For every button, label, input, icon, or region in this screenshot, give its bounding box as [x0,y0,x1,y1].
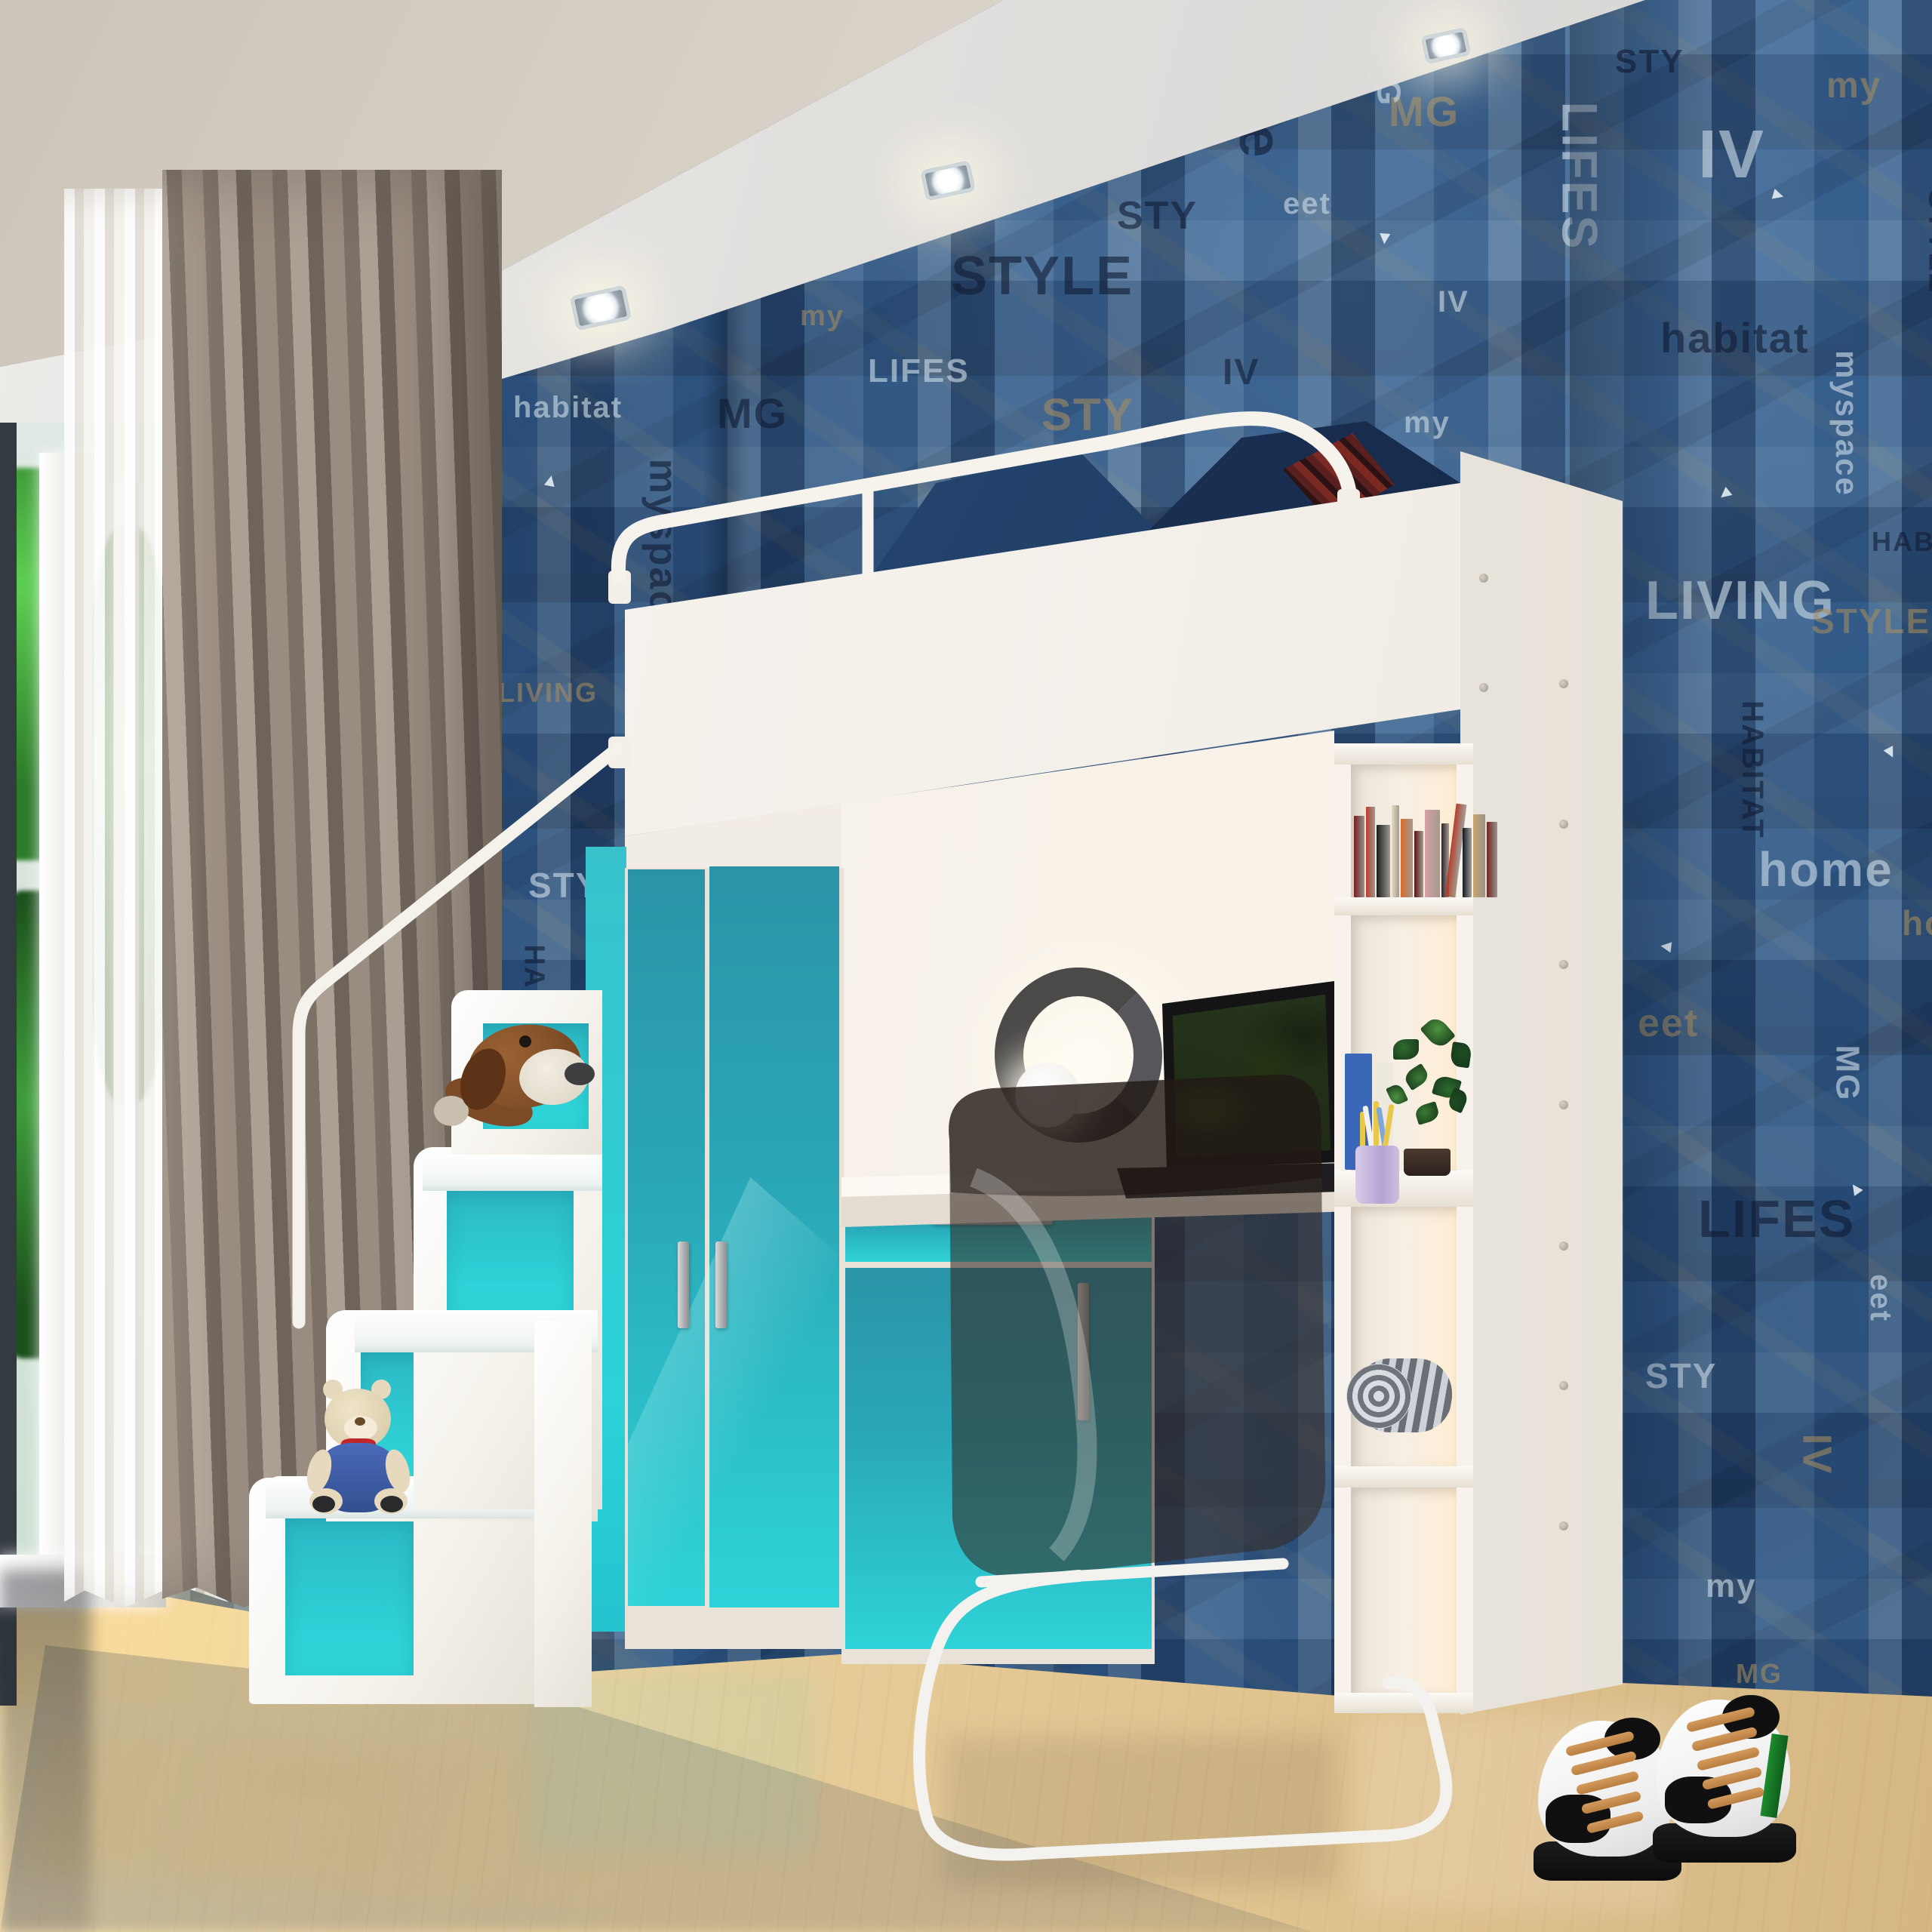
shelf-opening-4 [1351,1487,1457,1693]
books-row [1334,743,1473,897]
screw-cap [1559,1100,1568,1109]
wallpaper-word: habitat [513,392,623,423]
shelf-board [1334,1693,1473,1713]
book-spine [1392,805,1399,897]
chair-floor-shadow [943,1736,1336,1887]
bear-paw-pad [380,1496,403,1512]
screw-cap [1559,1521,1568,1531]
wallpaper-word: eet [1283,189,1331,219]
book-spine [1487,822,1497,897]
cabinet-door [845,1268,1152,1649]
screw-cap [1559,820,1568,829]
window-frame-dark [0,423,17,1706]
shelf-board [1334,897,1473,915]
screw-cap [1559,1381,1568,1390]
book-spine [1463,828,1472,897]
wardrobe-handle-right [715,1241,727,1328]
wallpaper-word: STY [1117,196,1198,235]
wallpaper-word: STY [1041,392,1134,438]
stair-stringer [534,1321,592,1707]
cabinet-door-handle [1078,1283,1089,1420]
wallpaper-word: my [800,302,844,331]
wallpaper-arrow-glyph: ▸ [1374,232,1399,245]
book-spine [1473,814,1485,897]
wallpaper-word: LIVING [498,679,598,706]
book-spine [1354,816,1364,897]
dog-nose [565,1063,595,1085]
wallpaper-arrow-glyph: ▸ [535,472,561,488]
bookshelf [1334,743,1473,1713]
wallpaper-word: my [1404,408,1451,438]
corner-shadow [0,1570,91,1932]
pencil-cup [1355,1146,1399,1204]
wardrobe-handle-left [678,1241,689,1328]
stair-riser-3 [447,1189,574,1316]
bear-paw-pad [312,1496,335,1512]
screw-cap [1559,679,1568,688]
book-spine [1401,819,1413,897]
plant-leaf [1393,1039,1419,1060]
ring-lamp [995,968,1162,1143]
book-spine [1377,825,1390,897]
book-spine [1366,807,1375,897]
wall-ambient-shadow [1570,0,1932,1736]
wallpaper-word: IV [1438,287,1469,317]
wallpaper-word: IV [1223,355,1260,391]
dog-eye [519,1035,531,1048]
wallpaper-word: LIFES [868,355,970,388]
lamp-sphere [1015,1063,1080,1128]
screw-cap [1559,960,1568,969]
bedroom-render: habitatmyspaceLIVINGSTYLEHABITAThomeeetM… [0,0,1932,1932]
book-spine [1425,810,1440,897]
wallpaper-word: STYLE [951,249,1134,303]
shelf-board [1334,1466,1473,1487]
bear-nose [355,1417,365,1426]
stair-riser-1 [285,1515,414,1675]
screw-cap [1479,574,1488,583]
plant-pot [1404,1149,1451,1176]
towel-roll-end [1346,1364,1411,1429]
stair-tread-4 [423,1155,602,1191]
sneaker-right [1653,1689,1804,1870]
screw-cap [1479,683,1488,692]
screw-cap [1559,1241,1568,1251]
book-spine [1414,831,1423,897]
